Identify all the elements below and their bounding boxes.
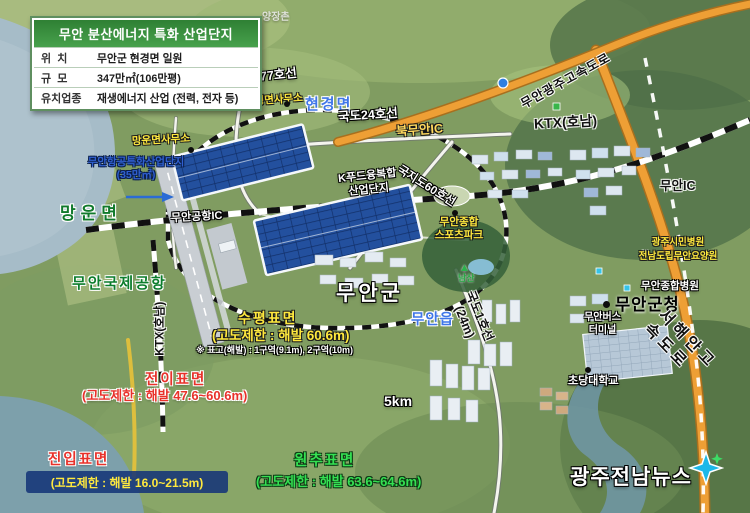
poi-dot	[284, 101, 290, 107]
poi-label-sports-park: 무안종합 스포츠파크	[428, 216, 490, 243]
rail-label-ktx-honam: KTX(호남)	[534, 112, 598, 133]
poi-label-chodang-university: 초당대학교	[568, 374, 619, 388]
poi-label-muan-general-hospital: 무안종합병원	[641, 280, 699, 293]
info-label: 유치업종	[34, 90, 97, 106]
arrow-icon	[124, 190, 176, 209]
ic-label-bukmuan: 북무안IC	[395, 120, 443, 139]
surface-label-transition: 전이표면	[145, 371, 206, 390]
poi-dot	[603, 301, 610, 308]
poi-dot	[585, 367, 591, 373]
surface-label-conical: 원추표면	[294, 452, 355, 471]
county-label-muan-gun: 무안군	[336, 281, 403, 308]
surface-limit-transition: (고도제한 : 해발 47.6~60.6m)	[82, 388, 247, 405]
poi-dot	[188, 147, 194, 153]
surface-label-horizontal: 수평표면	[238, 310, 298, 328]
info-panel: 무안 분산에너지 특화 산업단지 위 치 무안군 현경면 일원 규 모 347만…	[30, 16, 262, 111]
poi-label-bus-terminal: 무안버스 터미널	[575, 312, 630, 338]
info-label: 위 치	[34, 50, 97, 66]
town-label-muan-eup: 무안읍	[411, 311, 454, 330]
poi-dot	[452, 210, 458, 216]
info-panel-title: 무안 분산에너지 특화 산업단지	[34, 20, 258, 47]
complex-label-aviation: 무안항공특화산업단지 (35만㎡)	[82, 156, 190, 183]
info-value: 무안군 현경면 일원	[97, 50, 258, 66]
sparkle-icon	[688, 450, 724, 491]
info-label: 규 모	[34, 70, 97, 86]
info-row-industry: 유치업종 재생에너지 산업 (전력, 전자 등)	[34, 87, 258, 107]
approach-limit-box: (고도제한 : 해발 16.0~21.5m)	[26, 471, 228, 493]
info-row-location: 위 치 무안군 현경면 일원	[34, 47, 258, 67]
surface-label-approach: 진입표면	[48, 451, 109, 470]
ic-label-muan-airport: 무안공항IC	[171, 209, 223, 226]
surface-limit-approach: (고도제한 : 해발 16.0~21.5m)	[51, 474, 204, 491]
surface-limit-conical: (고도제한 : 해발 63.6~64.6m)	[256, 474, 421, 491]
info-row-scale: 규 모 347만㎡(106만평)	[34, 67, 258, 87]
scale-label: 5km	[384, 393, 412, 411]
info-value: 347만㎡(106만평)	[97, 70, 258, 86]
poi-label-hospital-note: 광주시민병원 전남도립무안요양원	[614, 236, 742, 265]
muan-industrial-complex-map: 무안 분산에너지 특화 산업단지 위 치 무안군 현경면 일원 규 모 347만…	[0, 0, 750, 513]
village-label: 양장촌	[262, 12, 290, 25]
info-value: 재생에너지 산업 (전력, 전자 등)	[97, 90, 258, 106]
surface-limit-horizontal: (고도제한 : 해발 60.6m)	[212, 327, 350, 344]
surface-note: ※ 표고(해발) : 1구역(9.1m), 2구역(10m)	[196, 345, 353, 357]
watermark: 광주전남뉴스	[570, 461, 692, 491]
district-label-mangun: 망운면	[60, 203, 122, 225]
ic-label-muan: 무안IC	[660, 178, 696, 194]
rail-label-ktx-honam-vertical: KTX(호남)	[152, 284, 167, 374]
